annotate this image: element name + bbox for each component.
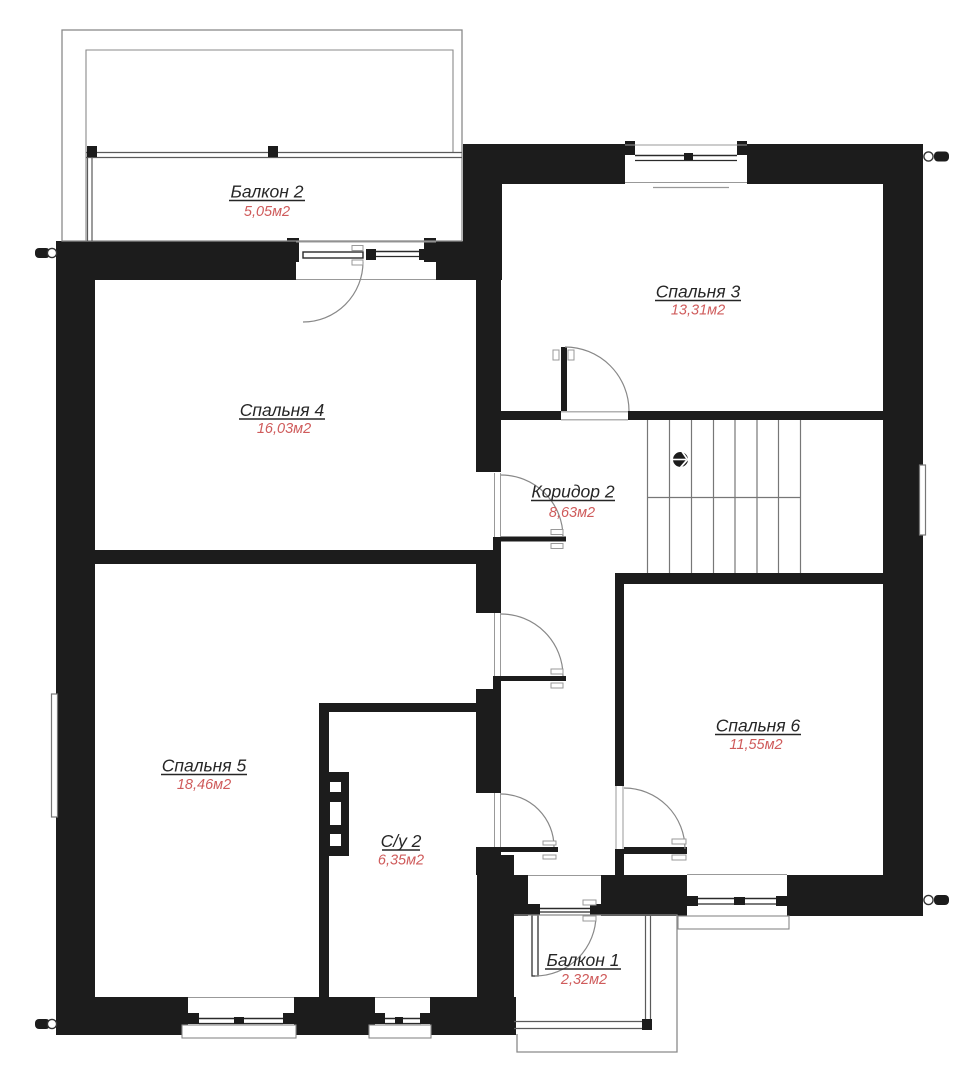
svg-text:Балкон 1: Балкон 1	[546, 950, 619, 970]
svg-text:5,05м2: 5,05м2	[244, 204, 290, 220]
svg-text:Спальня 3: Спальня 3	[656, 282, 741, 302]
svg-text:Спальня 6: Спальня 6	[716, 716, 801, 736]
svg-text:8,63м2: 8,63м2	[549, 505, 595, 521]
svg-text:2,32м2: 2,32м2	[560, 972, 607, 988]
svg-text:18,46м2: 18,46м2	[177, 777, 231, 793]
svg-text:С/у 2: С/у 2	[381, 831, 422, 851]
svg-text:16,03м2: 16,03м2	[257, 421, 311, 437]
svg-text:13,31м2: 13,31м2	[671, 303, 725, 319]
svg-text:Коридор 2: Коридор 2	[531, 482, 615, 502]
svg-text:6,35м2: 6,35м2	[378, 853, 424, 869]
svg-text:Спальня 4: Спальня 4	[240, 400, 325, 420]
svg-text:Спальня 5: Спальня 5	[162, 756, 247, 776]
svg-text:11,55м2: 11,55м2	[729, 737, 782, 753]
svg-text:Балкон 2: Балкон 2	[230, 182, 303, 202]
